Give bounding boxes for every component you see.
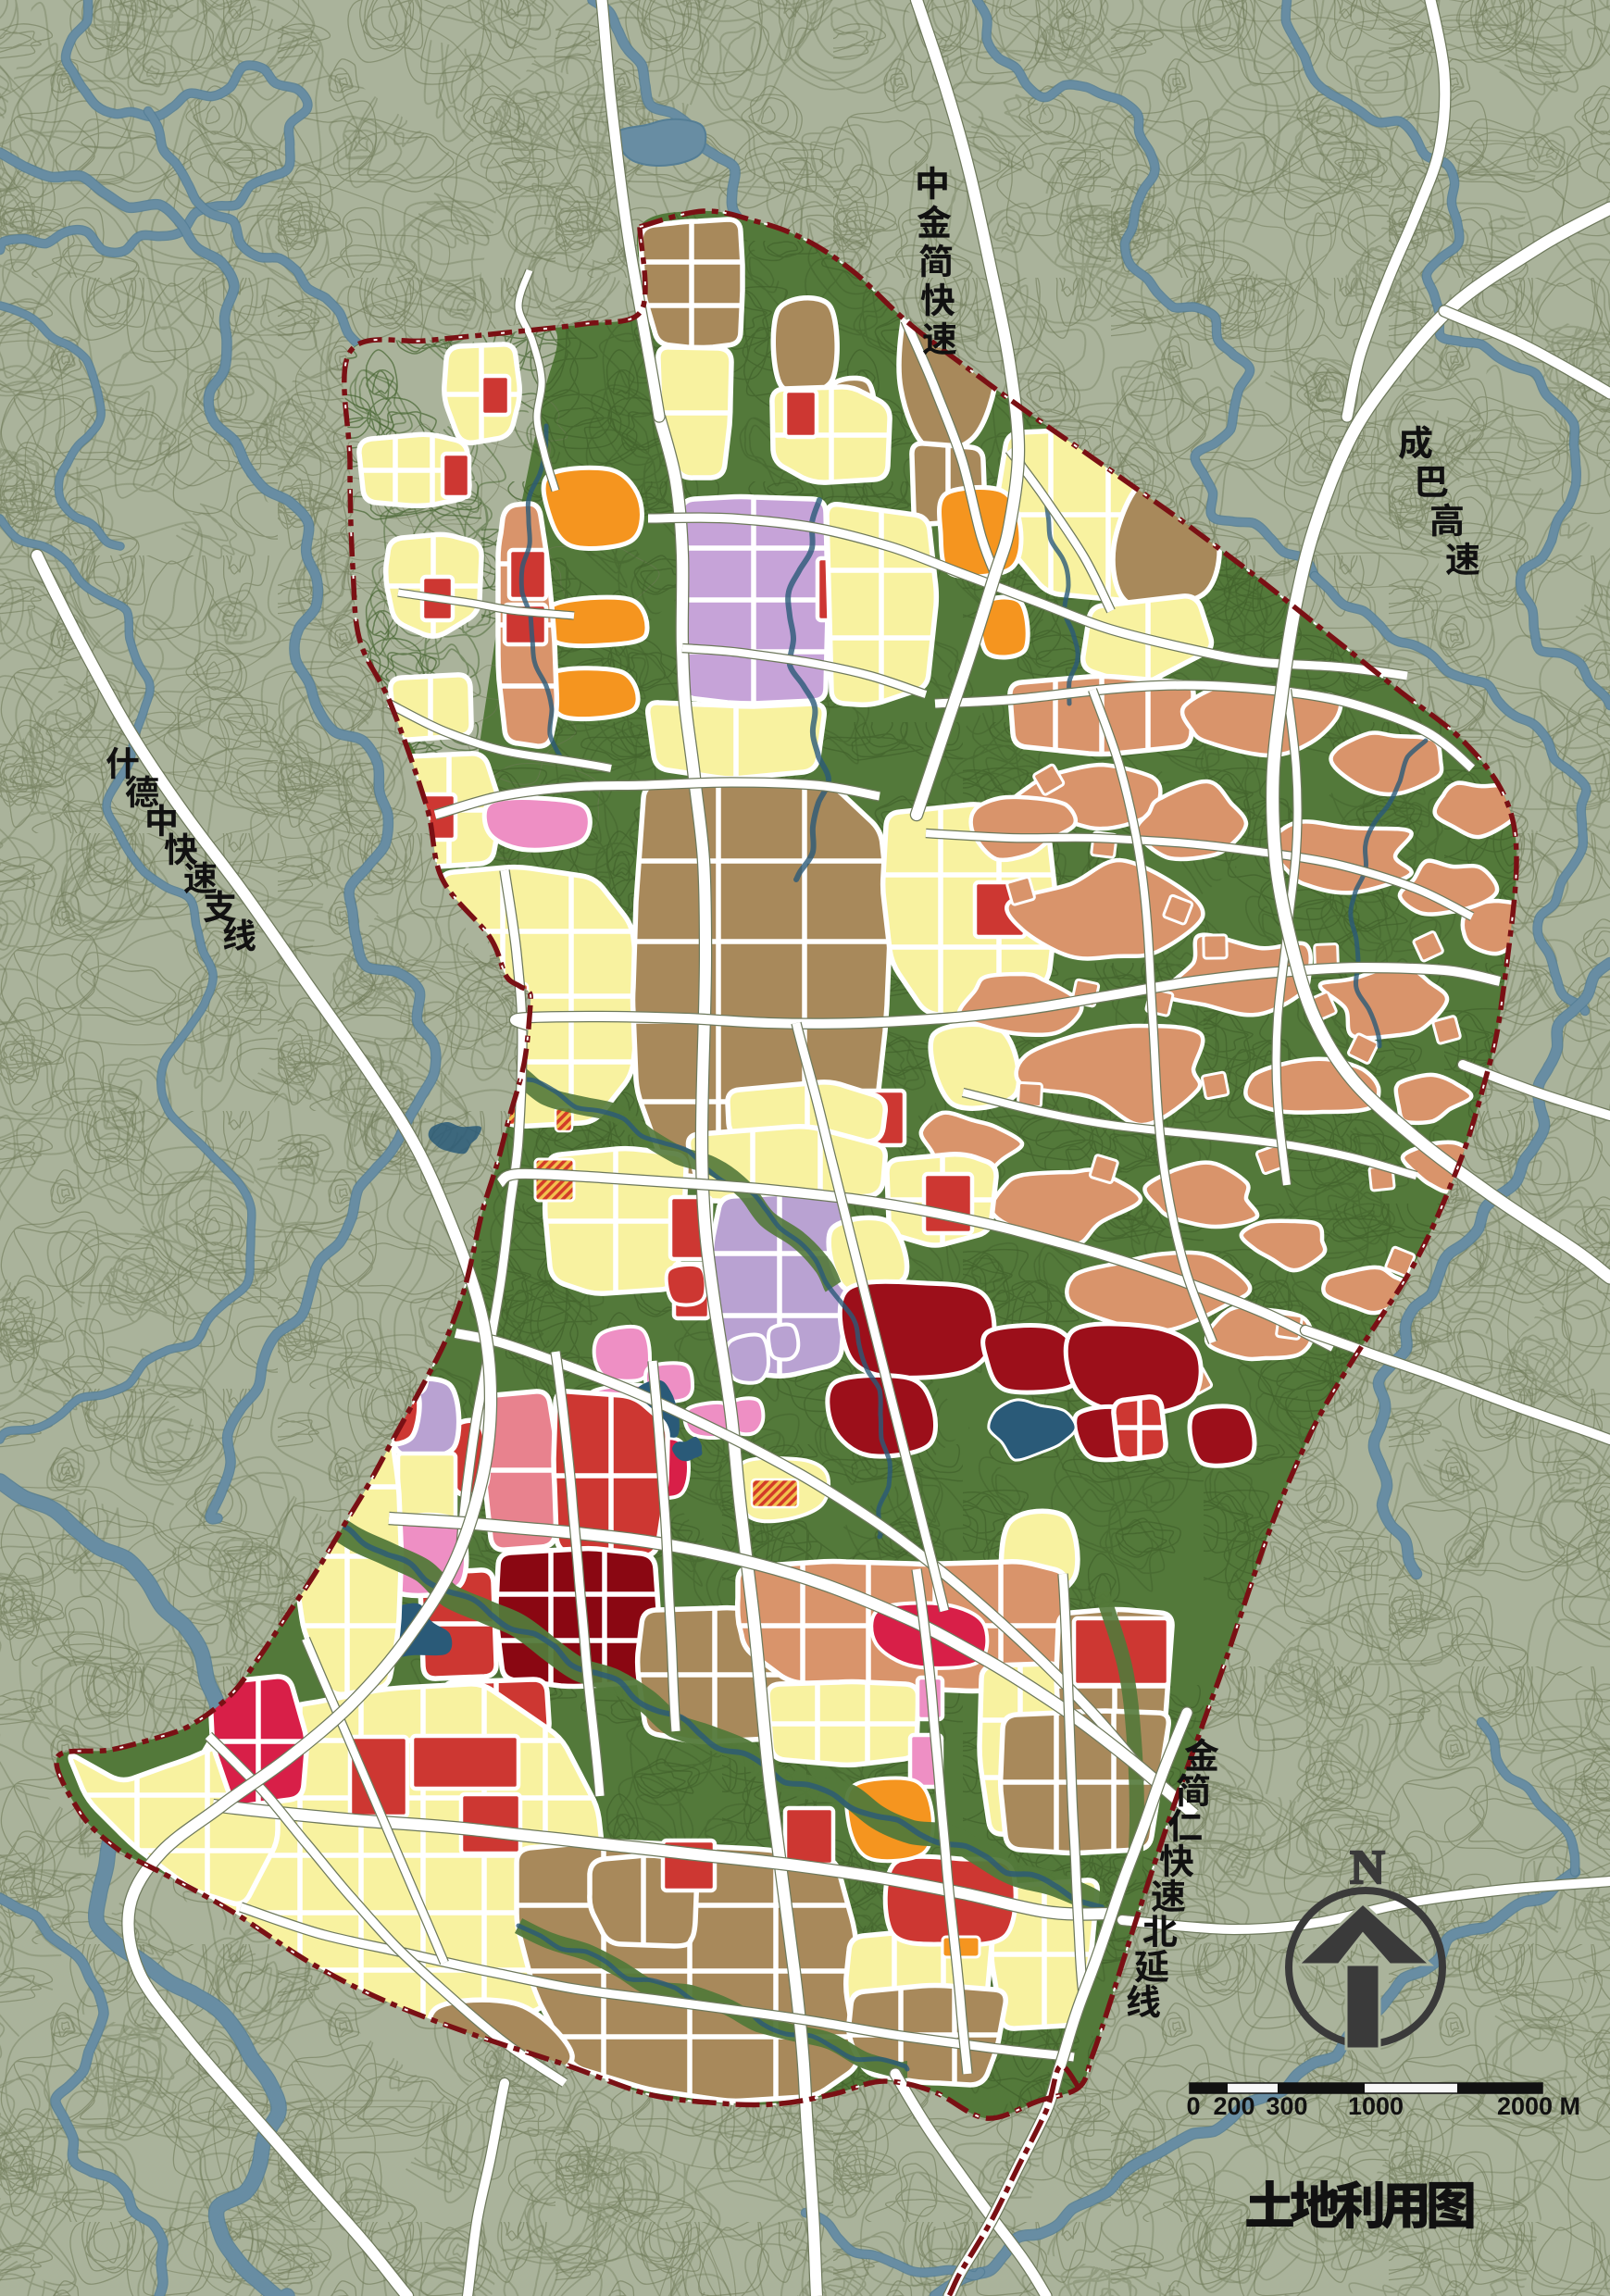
svg-text:200: 200 [1213,2092,1254,2120]
svg-text:0: 0 [1186,2092,1200,2120]
svg-text:N: N [1350,1841,1385,1894]
svg-text:2000 M: 2000 M [1497,2092,1580,2120]
svg-text:1000: 1000 [1348,2092,1404,2120]
svg-text:300: 300 [1266,2092,1307,2120]
